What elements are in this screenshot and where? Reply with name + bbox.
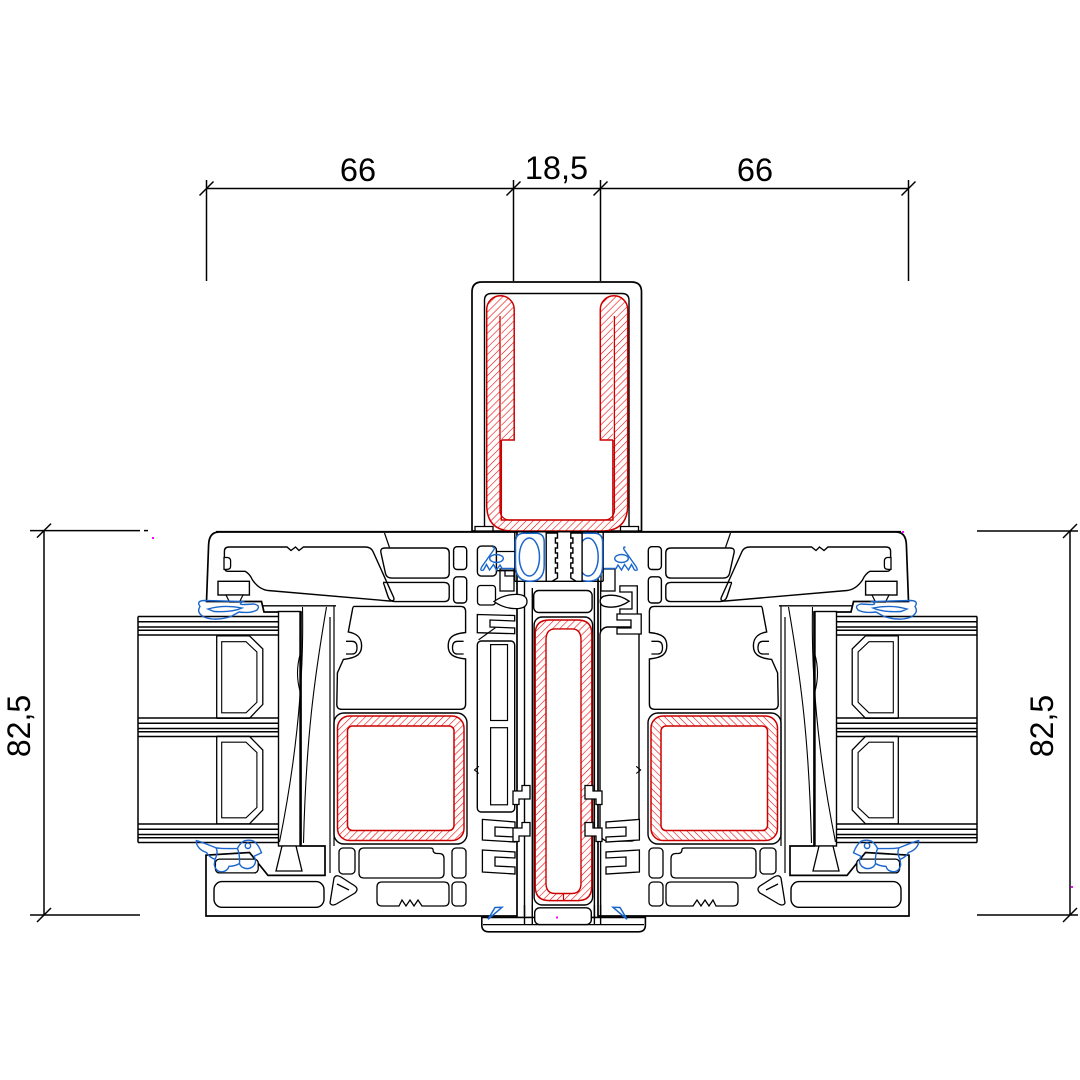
svg-text:82,5: 82,5 <box>1024 695 1060 757</box>
svg-text:66: 66 <box>340 152 376 188</box>
svg-text:66: 66 <box>737 152 773 188</box>
svg-text:18,5: 18,5 <box>525 150 588 186</box>
svg-text:82,5: 82,5 <box>1 695 37 757</box>
